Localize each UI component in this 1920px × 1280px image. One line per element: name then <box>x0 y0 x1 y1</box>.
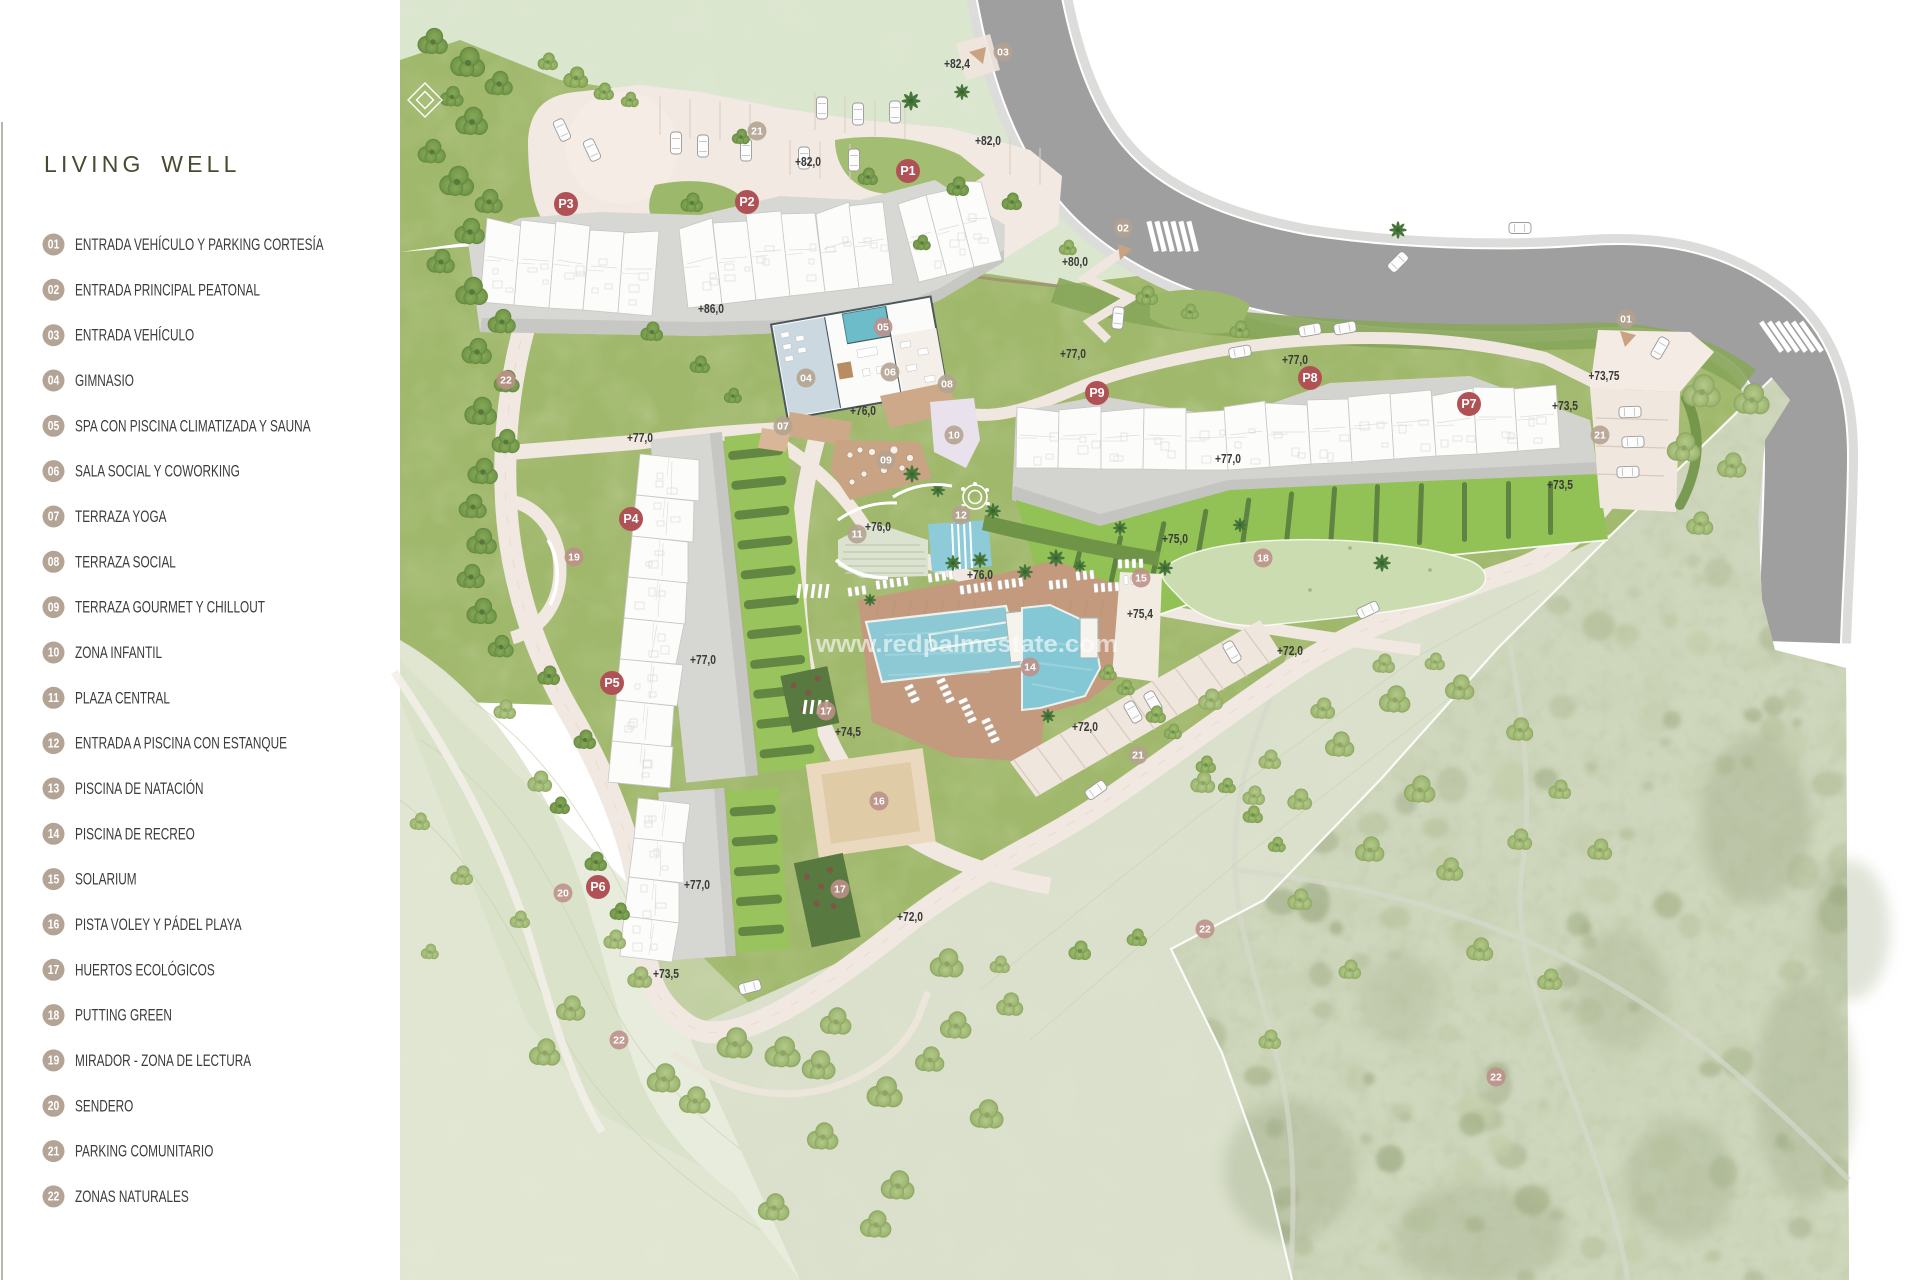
svg-text:04: 04 <box>48 374 60 388</box>
svg-text:21: 21 <box>1594 430 1606 442</box>
svg-text:14: 14 <box>48 827 60 841</box>
svg-text:+77,0: +77,0 <box>684 877 710 892</box>
svg-text:P5: P5 <box>604 676 619 690</box>
svg-text:18: 18 <box>1257 553 1269 565</box>
svg-text:+76,0: +76,0 <box>865 519 891 534</box>
svg-text:+82,0: +82,0 <box>795 154 821 169</box>
svg-text:+72,0: +72,0 <box>1277 643 1303 658</box>
svg-text:P1: P1 <box>900 164 915 178</box>
svg-text:+73,5: +73,5 <box>653 966 679 981</box>
svg-text:+75,0: +75,0 <box>1162 531 1188 546</box>
svg-text:PARKING COMUNITARIO: PARKING COMUNITARIO <box>75 1143 213 1161</box>
svg-text:+73,5: +73,5 <box>1552 398 1578 413</box>
svg-text:22: 22 <box>48 1190 60 1204</box>
svg-text:PISTA VOLEY Y PÁDEL PLAYA: PISTA VOLEY Y PÁDEL PLAYA <box>75 915 242 935</box>
svg-text:03: 03 <box>48 328 60 342</box>
svg-text:P4: P4 <box>623 512 638 526</box>
svg-text:16: 16 <box>873 796 885 808</box>
svg-text:20: 20 <box>557 888 569 900</box>
svg-text:18: 18 <box>48 1008 60 1022</box>
svg-text:04: 04 <box>800 373 812 385</box>
svg-text:P7: P7 <box>1461 397 1476 411</box>
svg-text:08: 08 <box>941 379 953 391</box>
svg-text:TERRAZA YOGA: TERRAZA YOGA <box>75 508 167 526</box>
svg-text:P9: P9 <box>1089 386 1104 400</box>
svg-text:12: 12 <box>955 510 967 522</box>
svg-text:03: 03 <box>997 47 1009 59</box>
svg-text:05: 05 <box>48 419 60 433</box>
svg-text:17: 17 <box>820 706 832 718</box>
svg-text:22: 22 <box>1199 924 1211 936</box>
svg-text:SENDERO: SENDERO <box>75 1097 133 1115</box>
svg-text:21: 21 <box>48 1144 60 1158</box>
svg-text:www.redpalmestate.com: www.redpalmestate.com <box>815 631 1118 658</box>
svg-text:+80,0: +80,0 <box>1062 254 1088 269</box>
svg-text:20: 20 <box>48 1099 60 1113</box>
svg-text:+76,0: +76,0 <box>967 567 993 582</box>
svg-text:PLAZA CENTRAL: PLAZA CENTRAL <box>75 689 170 707</box>
svg-text:17: 17 <box>48 963 60 977</box>
svg-text:15: 15 <box>48 872 60 886</box>
svg-text:02: 02 <box>48 283 60 297</box>
svg-text:16: 16 <box>48 918 60 932</box>
svg-text:SOLARIUM: SOLARIUM <box>75 871 137 889</box>
svg-text:+77,0: +77,0 <box>1060 346 1086 361</box>
svg-text:+77,0: +77,0 <box>1282 352 1308 367</box>
svg-text:21: 21 <box>1132 750 1144 762</box>
svg-text:06: 06 <box>48 464 60 478</box>
svg-text:08: 08 <box>48 555 60 569</box>
svg-text:P8: P8 <box>1302 371 1317 385</box>
svg-text:09: 09 <box>48 600 60 614</box>
svg-text:+77,0: +77,0 <box>1215 451 1241 466</box>
svg-text:+86,0: +86,0 <box>698 301 724 316</box>
svg-text:22: 22 <box>1490 1072 1502 1084</box>
svg-text:01: 01 <box>48 238 60 252</box>
svg-text:+72,0: +72,0 <box>897 909 923 924</box>
svg-text:13: 13 <box>48 782 60 796</box>
svg-text:01: 01 <box>1620 314 1632 326</box>
svg-text:+73,75: +73,75 <box>1589 368 1620 383</box>
svg-text:19: 19 <box>568 552 580 564</box>
svg-text:PISCINA DE NATACIÓN: PISCINA DE NATACIÓN <box>75 779 204 799</box>
svg-text:15: 15 <box>1135 573 1147 585</box>
svg-text:SALA SOCIAL Y COWORKING: SALA SOCIAL Y COWORKING <box>75 463 240 481</box>
svg-text:+77,0: +77,0 <box>627 430 653 445</box>
svg-text:PUTTING GREEN: PUTTING GREEN <box>75 1007 172 1025</box>
svg-text:22: 22 <box>613 1035 625 1047</box>
svg-text:21: 21 <box>751 126 763 138</box>
svg-text:HUERTOS ECOLÓGICOS: HUERTOS ECOLÓGICOS <box>75 960 215 980</box>
svg-text:19: 19 <box>48 1054 60 1068</box>
svg-text:22: 22 <box>500 375 512 387</box>
svg-text:TERRAZA SOCIAL: TERRAZA SOCIAL <box>75 553 176 571</box>
svg-text:ZONAS NATURALES: ZONAS NATURALES <box>75 1188 189 1206</box>
svg-text:07: 07 <box>777 421 789 433</box>
svg-text:ENTRADA A PISCINA CON ESTANQUE: ENTRADA A PISCINA CON ESTANQUE <box>75 735 287 753</box>
svg-text:+74,5: +74,5 <box>835 724 861 739</box>
svg-text:10: 10 <box>48 646 60 660</box>
svg-text:ZONA INFANTIL: ZONA INFANTIL <box>75 644 162 662</box>
svg-text:ENTRADA VEHÍCULO: ENTRADA VEHÍCULO <box>75 326 194 346</box>
svg-text:+75,4: +75,4 <box>1127 606 1154 621</box>
svg-text:P6: P6 <box>590 880 605 894</box>
svg-text:02: 02 <box>1117 223 1129 235</box>
svg-text:+73,5: +73,5 <box>1547 477 1573 492</box>
svg-text:+72,0: +72,0 <box>1072 719 1098 734</box>
svg-text:ENTRADA VEHÍCULO Y PARKING COR: ENTRADA VEHÍCULO Y PARKING CORTESÍA <box>75 235 324 255</box>
svg-text:10: 10 <box>948 430 960 442</box>
svg-text:SPA CON PISCINA CLIMATIZADA Y: SPA CON PISCINA CLIMATIZADA Y SAUNA <box>75 417 311 435</box>
svg-text:+82,4: +82,4 <box>944 56 971 71</box>
svg-text:17: 17 <box>834 884 846 896</box>
svg-text:LIVING WELL: LIVING WELL <box>44 151 241 177</box>
svg-text:TERRAZA GOURMET Y CHILLOUT: TERRAZA GOURMET Y CHILLOUT <box>75 599 265 617</box>
svg-text:05: 05 <box>877 322 889 334</box>
svg-text:+77,0: +77,0 <box>690 652 716 667</box>
svg-text:+82,0: +82,0 <box>975 133 1001 148</box>
svg-text:PISCINA DE RECREO: PISCINA DE RECREO <box>75 825 195 843</box>
svg-text:09: 09 <box>880 455 892 467</box>
svg-text:12: 12 <box>48 736 60 750</box>
svg-text:06: 06 <box>884 367 896 379</box>
svg-text:P3: P3 <box>558 197 573 211</box>
svg-text:GIMNASIO: GIMNASIO <box>75 372 134 390</box>
svg-text:P2: P2 <box>739 195 754 209</box>
svg-text:14: 14 <box>1024 662 1036 674</box>
svg-text:ENTRADA PRINCIPAL PEATONAL: ENTRADA PRINCIPAL PEATONAL <box>75 281 260 299</box>
svg-text:+76,0: +76,0 <box>850 403 876 418</box>
svg-text:07: 07 <box>48 510 60 524</box>
svg-text:11: 11 <box>48 691 59 705</box>
svg-text:MIRADOR - ZONA DE LECTURA: MIRADOR - ZONA DE LECTURA <box>75 1052 252 1070</box>
svg-text:11: 11 <box>851 529 862 541</box>
